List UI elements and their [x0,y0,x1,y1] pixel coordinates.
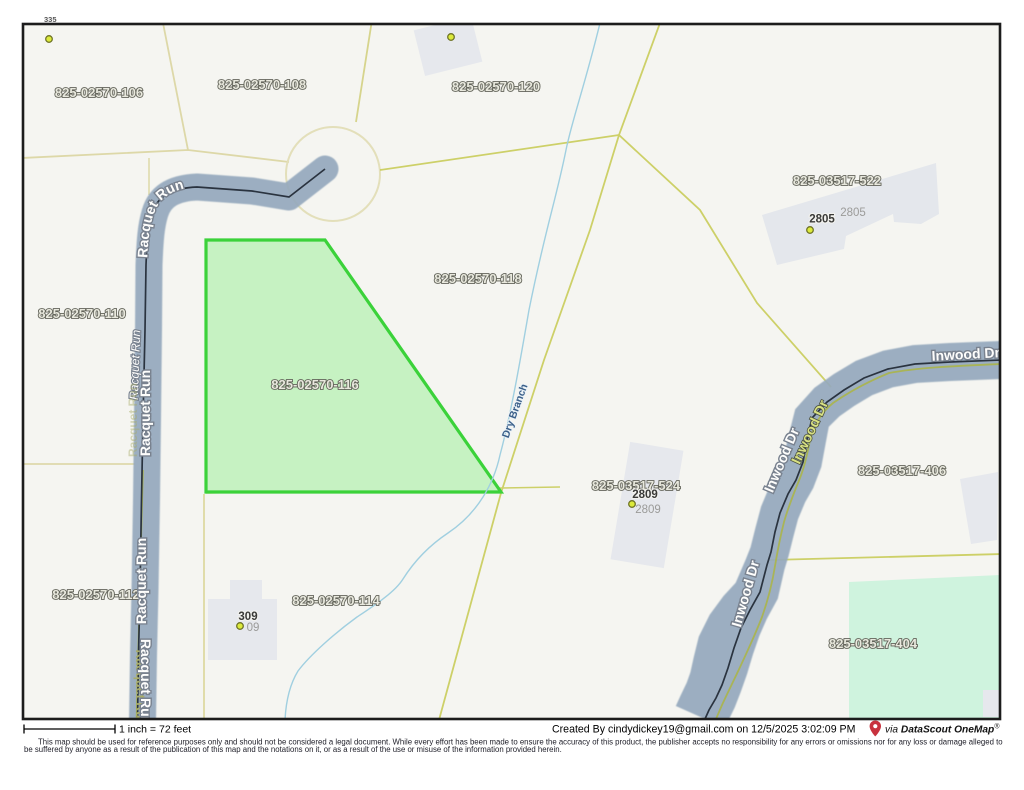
svg-text:825-02570-108: 825-02570-108 [218,77,306,92]
svg-text:Racquet Run: Racquet Run [137,370,153,456]
svg-text:Created By cindydickey19@gmai: Created By cindydickey19@gmail.com on 12… [552,724,855,736]
svg-text:825-03517-522: 825-03517-522 [793,173,881,188]
svg-text:09: 09 [247,622,260,634]
svg-text:Racquet Run: Racquet Run [133,538,149,624]
svg-text:be suffered by anyone as a res: be suffered by anyone as a result of the… [24,745,562,754]
svg-text:825-02570-112: 825-02570-112 [52,587,139,602]
svg-text:825-03517-406: 825-03517-406 [858,463,946,478]
svg-text:825-02570-120: 825-02570-120 [452,79,540,94]
svg-text:825-02570-106: 825-02570-106 [55,85,143,100]
svg-text:2805: 2805 [840,207,866,219]
svg-text:825-02570-110: 825-02570-110 [38,306,125,321]
svg-text:825-02570-116: 825-02570-116 [271,377,358,392]
svg-text:2809: 2809 [632,489,658,501]
svg-text:2805: 2805 [809,214,835,226]
svg-text:2809: 2809 [635,504,661,516]
svg-text:825-02570-118: 825-02570-118 [434,271,521,286]
svg-text:825-03517-404: 825-03517-404 [829,636,918,651]
svg-text:via DataScout OneMap®: via DataScout OneMap® [885,723,1000,736]
svg-text:335: 335 [44,15,57,24]
svg-text:Racquet Run: Racquet Run [138,639,154,725]
svg-text:825-02570-114: 825-02570-114 [292,593,380,608]
svg-text:1 inch = 72 feet: 1 inch = 72 feet [119,724,191,736]
